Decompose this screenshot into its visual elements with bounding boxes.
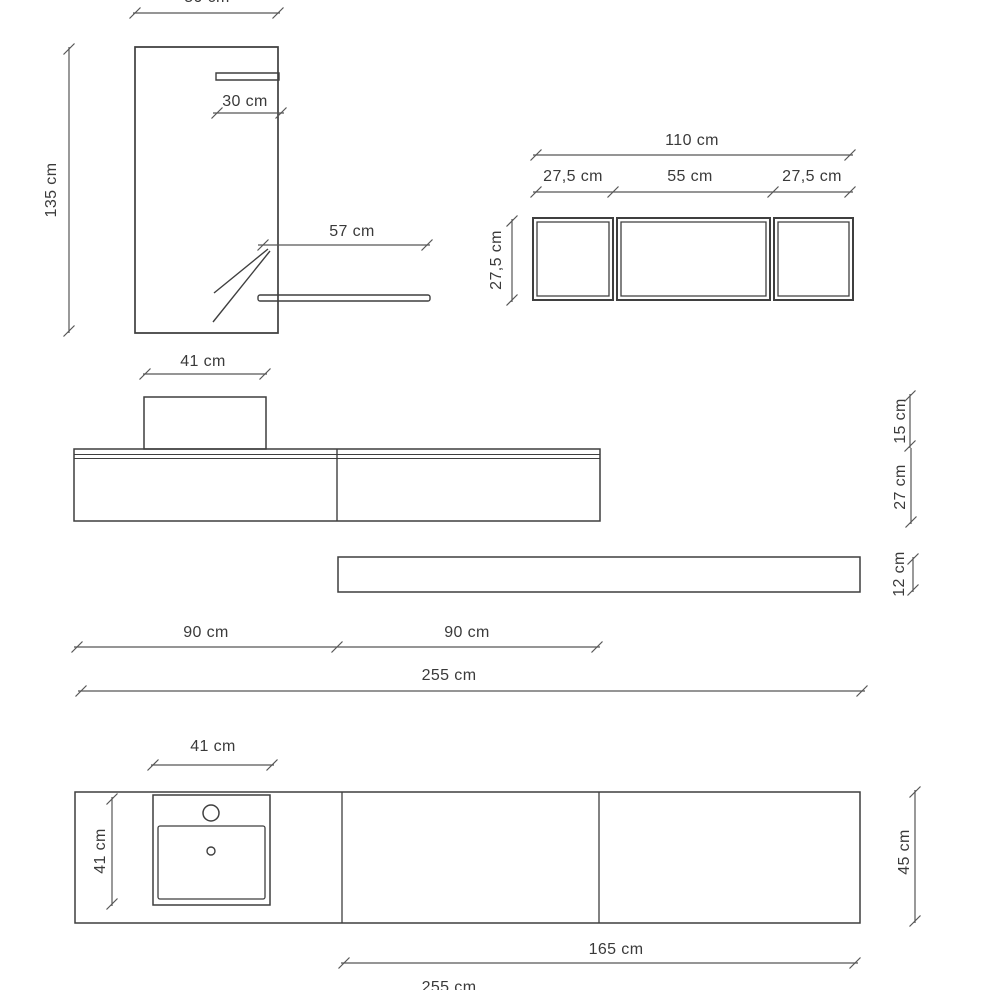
dim-wall-unit-center-width: 55 cm xyxy=(667,169,713,185)
dim-front-total-width: 255 cm xyxy=(422,668,477,684)
faucet-hole xyxy=(203,805,219,821)
technical-drawing-canvas: 50 cm 30 cm 135 cm 57 cm 110 cm 27,5 cm … xyxy=(0,0,990,990)
dim-mirror-height: 135 cm xyxy=(44,163,60,218)
vanity-plan-view xyxy=(75,792,860,923)
dim-basin-plan-depth: 41 cm xyxy=(93,828,109,874)
dim-mirror-width: 50 cm xyxy=(184,0,230,6)
drawing-svg xyxy=(0,0,990,990)
basin-front xyxy=(144,397,266,449)
wall-unit-box-center xyxy=(617,218,770,300)
dim-plan-total-width: 255 cm xyxy=(422,980,477,990)
mirror-dimension-lines xyxy=(64,8,433,337)
dim-module-left-width: 90 cm xyxy=(183,625,229,641)
dim-mirror-shelf-length: 57 cm xyxy=(329,224,375,240)
countertop-plan xyxy=(75,792,860,923)
wall-unit-box-left xyxy=(533,218,613,300)
dim-basin-height: 15 cm xyxy=(893,398,909,444)
dim-wall-unit-left-width: 27,5 cm xyxy=(543,169,603,185)
mirror-hatch-lines xyxy=(213,249,270,322)
dim-towel-bar-width: 30 cm xyxy=(222,94,268,110)
dim-wall-unit-total-width: 110 cm xyxy=(665,133,719,149)
dim-wall-unit-right-width: 27,5 cm xyxy=(782,169,842,185)
drain-hole xyxy=(207,847,215,855)
vanity-front-dimension-lines xyxy=(72,369,919,697)
basin-plan-outer xyxy=(153,795,270,905)
dim-cabinet-height: 27 cm xyxy=(893,464,909,510)
mirror-front-view xyxy=(135,47,430,333)
dim-wall-shelf-height: 12 cm xyxy=(892,551,908,597)
dim-basin-plan-width: 41 cm xyxy=(190,739,236,755)
basin-plan-inner xyxy=(158,826,265,899)
wall-unit-box-right xyxy=(774,218,853,300)
dim-wall-unit-height: 27,5 cm xyxy=(489,230,505,290)
wall-unit-view xyxy=(533,218,853,300)
towel-bar xyxy=(216,73,279,80)
mirror-outline xyxy=(135,47,278,333)
dim-module-right-width: 90 cm xyxy=(444,625,490,641)
dim-basin-front-width: 41 cm xyxy=(180,354,226,370)
vanity-plan-dimension-lines xyxy=(107,760,921,969)
mirror-shelf xyxy=(258,295,430,301)
vanity-front-view xyxy=(74,397,860,592)
dim-counter-depth: 45 cm xyxy=(897,829,913,875)
dim-right-section-width: 165 cm xyxy=(589,942,644,958)
wall-shelf xyxy=(338,557,860,592)
